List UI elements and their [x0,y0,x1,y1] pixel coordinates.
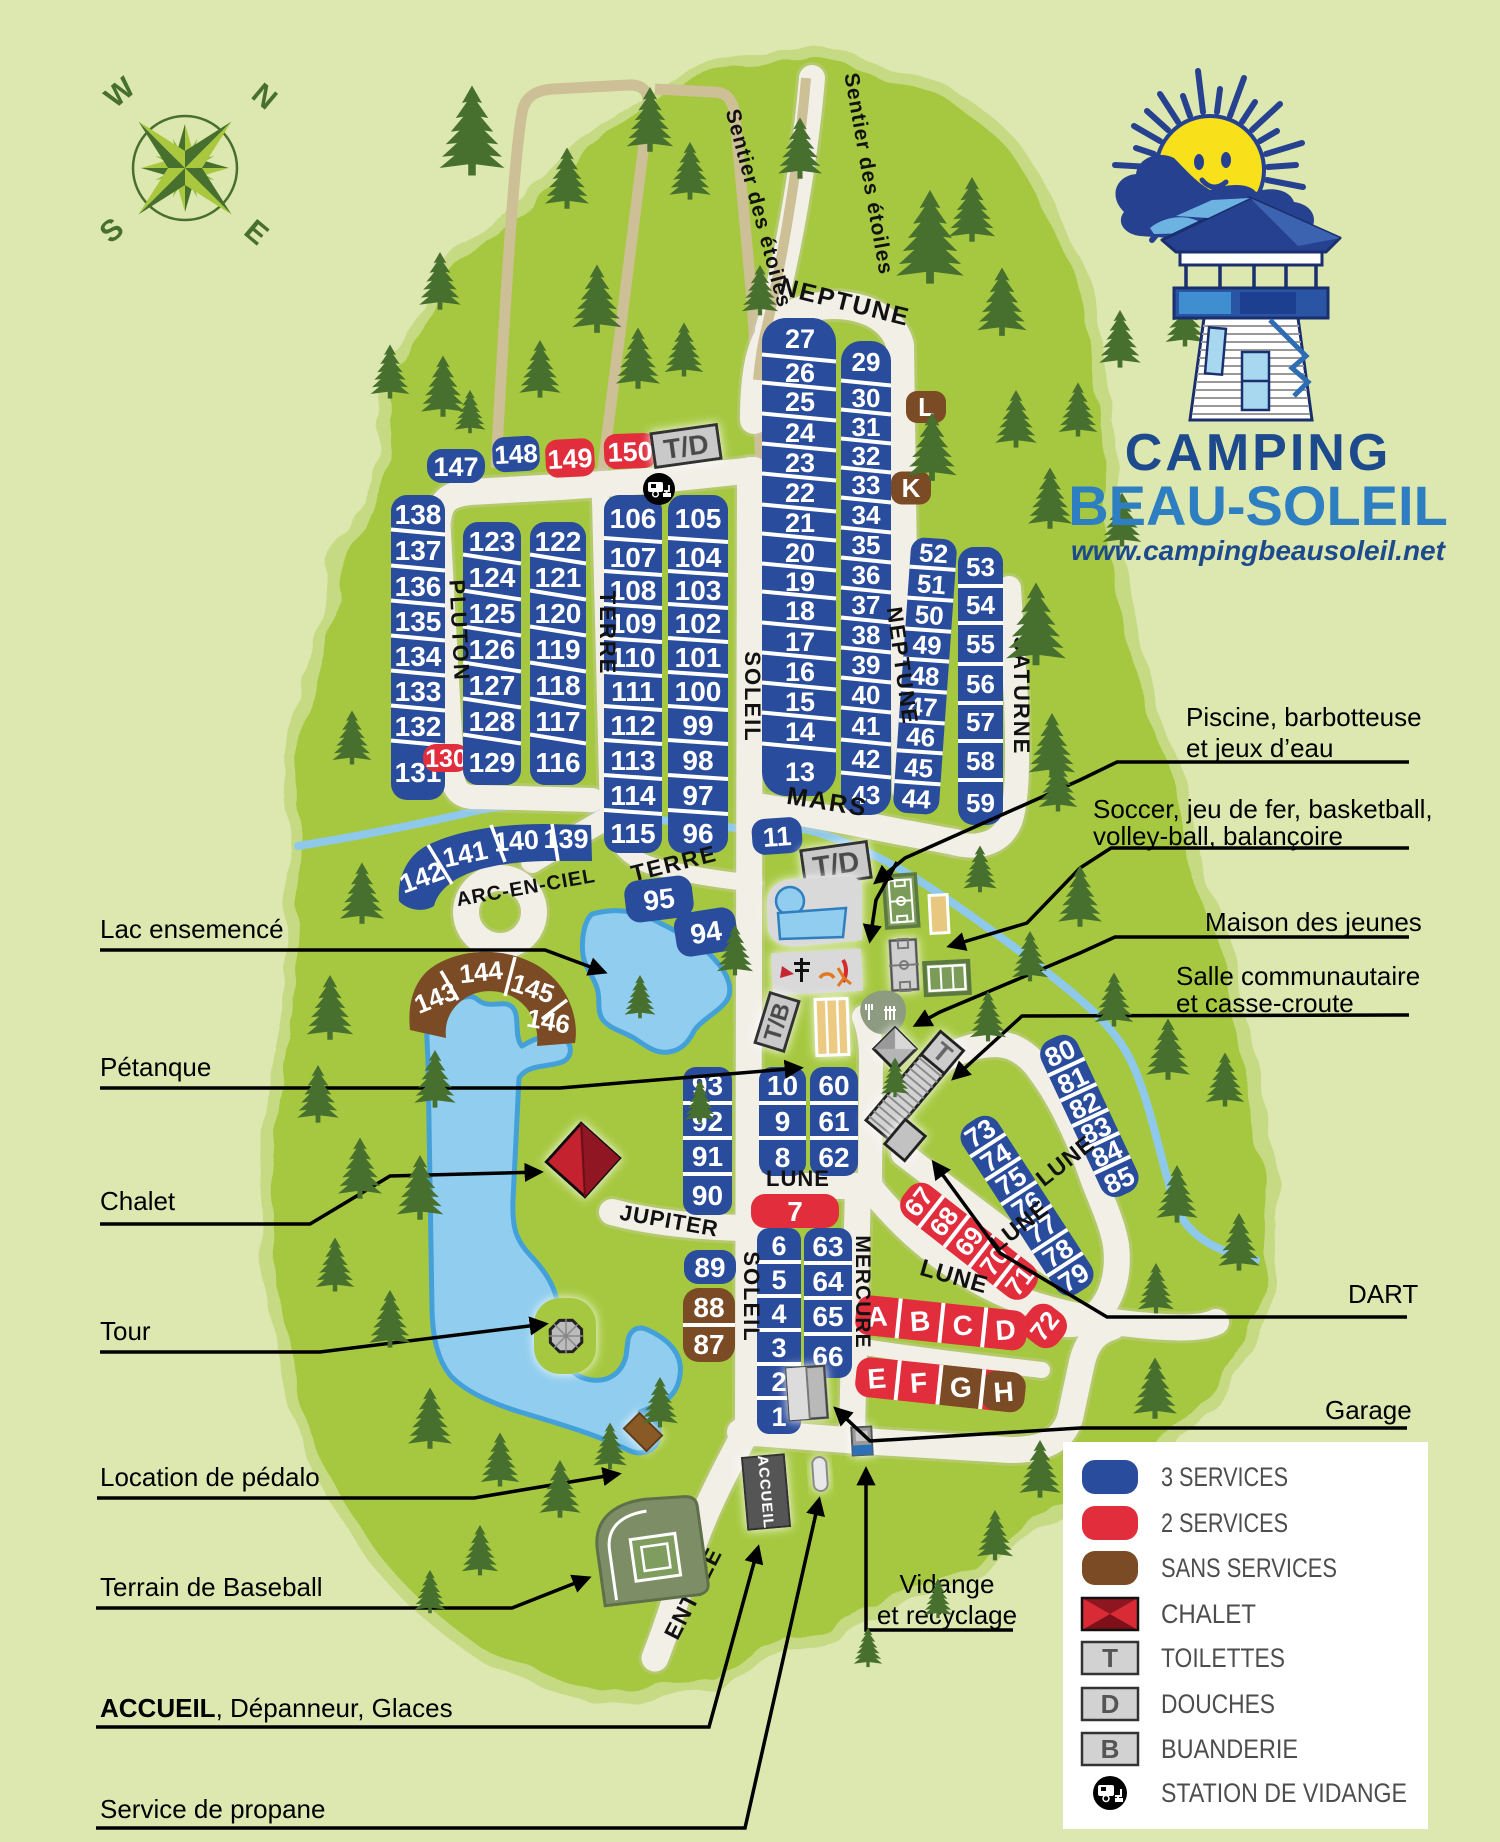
svg-text:90: 90 [692,1180,723,1211]
svg-text:Pétanque: Pétanque [100,1052,211,1082]
svg-text:Service de propane: Service de propane [100,1794,325,1824]
svg-text:36: 36 [852,560,881,590]
svg-text:91: 91 [692,1141,723,1172]
svg-text:46: 46 [905,721,936,753]
svg-text:19: 19 [785,567,815,597]
svg-text:94: 94 [688,915,724,951]
svg-text:B: B [909,1305,931,1337]
svg-text:TERRE: TERRE [595,591,620,676]
svg-text:25: 25 [785,387,815,417]
svg-text:122: 122 [535,526,582,557]
svg-text:3 SERVICES: 3 SERVICES [1161,1462,1288,1492]
svg-text:Lac ensemencé: Lac ensemencé [100,914,284,944]
svg-text:10: 10 [767,1070,798,1101]
svg-text:136: 136 [395,571,442,602]
svg-text:22: 22 [785,478,815,508]
svg-text:Chalet: Chalet [100,1186,176,1216]
svg-text:5: 5 [771,1265,786,1295]
svg-text:MERCURE: MERCURE [851,1235,874,1348]
svg-text:3: 3 [771,1333,786,1363]
svg-text:106: 106 [610,503,657,534]
svg-text:135: 135 [395,606,442,637]
svg-text:35: 35 [852,530,881,560]
svg-text:99: 99 [682,710,713,741]
svg-text:133: 133 [395,676,442,707]
svg-text:TOILETTES: TOILETTES [1161,1643,1285,1673]
svg-text:64: 64 [812,1266,844,1297]
svg-text:15: 15 [785,687,815,717]
svg-text:140: 140 [493,824,540,857]
svg-text:LUNE: LUNE [766,1166,830,1191]
svg-text:116: 116 [535,747,580,778]
svg-text:60: 60 [818,1070,849,1101]
svg-text:40: 40 [852,680,881,710]
svg-text:PLUTON: PLUTON [444,579,474,682]
svg-text:112: 112 [610,710,655,741]
svg-text:Tour: Tour [100,1316,151,1346]
svg-text:128: 128 [469,706,516,737]
svg-text:61: 61 [818,1106,849,1137]
svg-text:Piscine, barbotteuse: Piscine, barbotteuse [1186,702,1422,732]
svg-text:BEAU-SOLEIL: BEAU-SOLEIL [1068,474,1448,537]
svg-text:57: 57 [966,707,995,737]
svg-text:117: 117 [535,706,580,737]
svg-text:88: 88 [693,1292,724,1323]
svg-text:BUANDERIE: BUANDERIE [1161,1734,1298,1764]
svg-text:Terrain de Baseball: Terrain de Baseball [100,1572,323,1602]
svg-text:Location de pédalo: Location de pédalo [100,1462,320,1492]
svg-text:107: 107 [610,542,657,573]
svg-text:D: D [1101,1689,1120,1719]
svg-text:147: 147 [433,452,478,482]
svg-text:F: F [909,1367,928,1399]
svg-text:120: 120 [535,598,582,629]
svg-text:D: D [994,1314,1016,1346]
svg-text:Salle communautaire: Salle communautaire [1176,961,1420,991]
svg-text:31: 31 [852,412,881,442]
svg-text:148: 148 [494,438,539,470]
svg-text:9: 9 [775,1106,791,1137]
svg-text:1: 1 [771,1402,786,1432]
svg-text:39: 39 [852,650,881,680]
svg-text:53: 53 [966,552,995,582]
svg-text:29: 29 [852,347,881,377]
svg-text:103: 103 [675,575,722,606]
svg-text:132: 132 [395,711,442,742]
svg-text:126: 126 [469,634,516,665]
svg-text:137: 137 [395,535,442,566]
svg-text:134: 134 [395,641,442,672]
svg-text:T: T [1102,1643,1118,1673]
svg-text:C: C [952,1309,974,1341]
svg-text:41: 41 [852,711,881,741]
svg-text:7: 7 [787,1196,803,1227]
svg-text:DART: DART [1348,1279,1418,1309]
svg-text:114: 114 [610,780,656,811]
svg-text:121: 121 [535,562,582,593]
svg-text:113: 113 [610,745,655,776]
svg-text:102: 102 [675,608,722,639]
svg-text:27: 27 [785,324,815,354]
svg-text:127: 127 [469,670,516,701]
svg-text:DOUCHES: DOUCHES [1161,1689,1275,1719]
svg-text:34: 34 [852,500,881,530]
svg-text:Maison des jeunes: Maison des jeunes [1205,907,1422,937]
svg-text:21: 21 [785,508,815,538]
svg-text:98: 98 [682,745,713,776]
svg-text:et recyclage: et recyclage [877,1600,1017,1630]
svg-text:STATION DE VIDANGE: STATION DE VIDANGE [1161,1778,1407,1808]
svg-text:Garage: Garage [1325,1395,1412,1425]
svg-text:17: 17 [785,627,815,657]
svg-text:56: 56 [966,669,995,699]
svg-text:ACCUEIL, Dépanneur, Glaces: ACCUEIL, Dépanneur, Glaces [100,1693,453,1723]
svg-text:149: 149 [547,443,594,475]
svg-text:2 SERVICES: 2 SERVICES [1161,1508,1288,1538]
svg-text:SOLEIL: SOLEIL [740,651,765,742]
svg-text:100: 100 [675,676,722,707]
svg-text:105: 105 [675,503,722,534]
svg-text:4: 4 [771,1299,786,1329]
svg-text:89: 89 [694,1252,725,1283]
svg-text:115: 115 [610,818,655,849]
svg-text:97: 97 [682,780,713,811]
svg-text:65: 65 [812,1301,843,1332]
svg-text:14: 14 [785,717,815,747]
svg-text:138: 138 [395,499,442,530]
svg-text:K: K [902,473,921,503]
svg-text:T/D: T/D [662,428,711,465]
svg-text:55: 55 [966,629,995,659]
svg-text:49: 49 [912,629,943,661]
svg-text:54: 54 [966,590,995,620]
svg-text:104: 104 [675,542,722,573]
svg-text:129: 129 [469,747,516,778]
svg-text:59: 59 [966,788,995,818]
svg-text:Soccer, jeu de fer, basketball: Soccer, jeu de fer, basketball, [1093,794,1433,824]
svg-text:101: 101 [675,642,722,673]
svg-text:118: 118 [535,670,580,701]
svg-text:38: 38 [852,620,881,650]
svg-text:42: 42 [852,744,881,774]
svg-text:37: 37 [852,590,881,620]
svg-text:119: 119 [535,634,580,665]
svg-text:Vidange: Vidange [900,1569,995,1599]
svg-text:123: 123 [469,526,516,557]
svg-text:51: 51 [916,568,947,600]
svg-text:16: 16 [785,657,815,687]
svg-text:26: 26 [785,358,815,388]
svg-text:50: 50 [914,599,945,631]
svg-text:H: H [992,1376,1014,1408]
svg-text:125: 125 [469,598,516,629]
svg-text:2: 2 [771,1367,786,1397]
svg-text:111: 111 [611,676,655,707]
svg-text:33: 33 [852,470,881,500]
svg-text:32: 32 [852,441,881,471]
svg-text:58: 58 [966,746,995,776]
svg-text:44: 44 [901,783,932,815]
svg-text:SOLEIL: SOLEIL [739,1251,764,1342]
svg-text:B: B [1101,1734,1120,1764]
svg-text:63: 63 [812,1231,843,1262]
svg-text:6: 6 [771,1231,786,1261]
svg-text:150: 150 [607,436,653,468]
svg-text:20: 20 [785,538,815,568]
svg-text:45: 45 [903,752,934,784]
svg-text:23: 23 [785,448,815,478]
svg-text:30: 30 [852,383,881,413]
svg-text:E: E [866,1362,887,1394]
svg-text:G: G [949,1371,973,1403]
svg-text:144: 144 [458,955,505,989]
svg-text:CHALET: CHALET [1161,1599,1256,1629]
svg-text:11: 11 [762,821,793,853]
svg-text:139: 139 [543,824,588,854]
svg-text:SANS SERVICES: SANS SERVICES [1161,1553,1337,1583]
svg-text:18: 18 [785,596,815,626]
svg-text:95: 95 [642,882,677,917]
svg-text:124: 124 [469,562,516,593]
svg-text:et jeux d’eau: et jeux d’eau [1186,733,1333,763]
svg-text:52: 52 [918,537,949,569]
svg-text:24: 24 [785,418,815,448]
svg-text:130: 130 [425,745,467,773]
svg-text:www.campingbeausoleil.net: www.campingbeausoleil.net [1071,535,1447,566]
svg-text:87: 87 [693,1329,724,1360]
